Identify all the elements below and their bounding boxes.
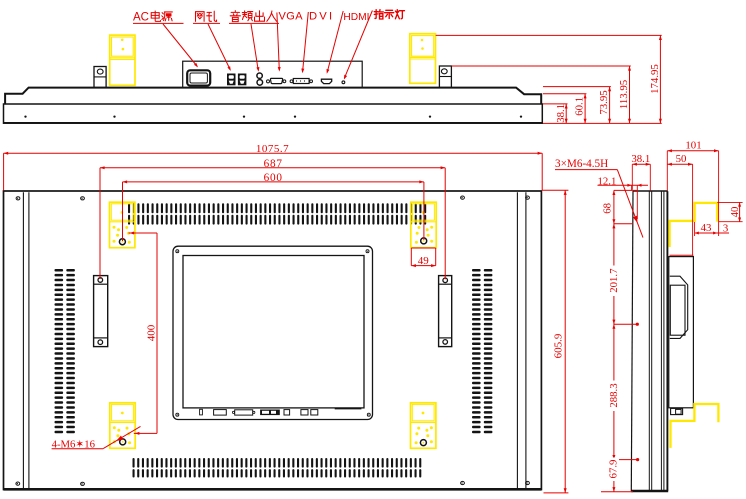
- svg-text:201.7: 201.7: [608, 268, 620, 293]
- svg-text:38.1: 38.1: [555, 104, 567, 123]
- svg-text:38.1: 38.1: [631, 153, 650, 165]
- svg-text:3×M6-4.5H: 3×M6-4.5H: [555, 158, 608, 170]
- svg-text:60.1: 60.1: [574, 97, 586, 116]
- svg-text:49: 49: [418, 255, 430, 267]
- svg-text:1075.7: 1075.7: [256, 143, 289, 155]
- svg-text:AC: AC: [133, 11, 149, 23]
- svg-text:3: 3: [723, 223, 728, 235]
- svg-text:101: 101: [685, 140, 701, 152]
- svg-text:HDMI: HDMI: [343, 12, 369, 23]
- svg-text:687: 687: [264, 158, 283, 170]
- svg-text:288.3: 288.3: [608, 383, 620, 407]
- svg-text:VGA: VGA: [279, 11, 304, 23]
- svg-text:400: 400: [146, 324, 158, 341]
- svg-text:73.95: 73.95: [598, 90, 610, 114]
- svg-text:174.95: 174.95: [649, 64, 661, 94]
- svg-text:DVI: DVI: [309, 10, 334, 22]
- svg-text:605.9: 605.9: [553, 333, 565, 358]
- svg-text:68: 68: [602, 203, 614, 214]
- svg-text:43: 43: [701, 222, 712, 234]
- svg-text:50: 50: [676, 153, 687, 165]
- svg-text:600: 600: [264, 172, 283, 184]
- svg-text:40: 40: [729, 207, 741, 218]
- svg-text:113.95: 113.95: [618, 80, 630, 109]
- svg-text:67.9: 67.9: [608, 460, 620, 479]
